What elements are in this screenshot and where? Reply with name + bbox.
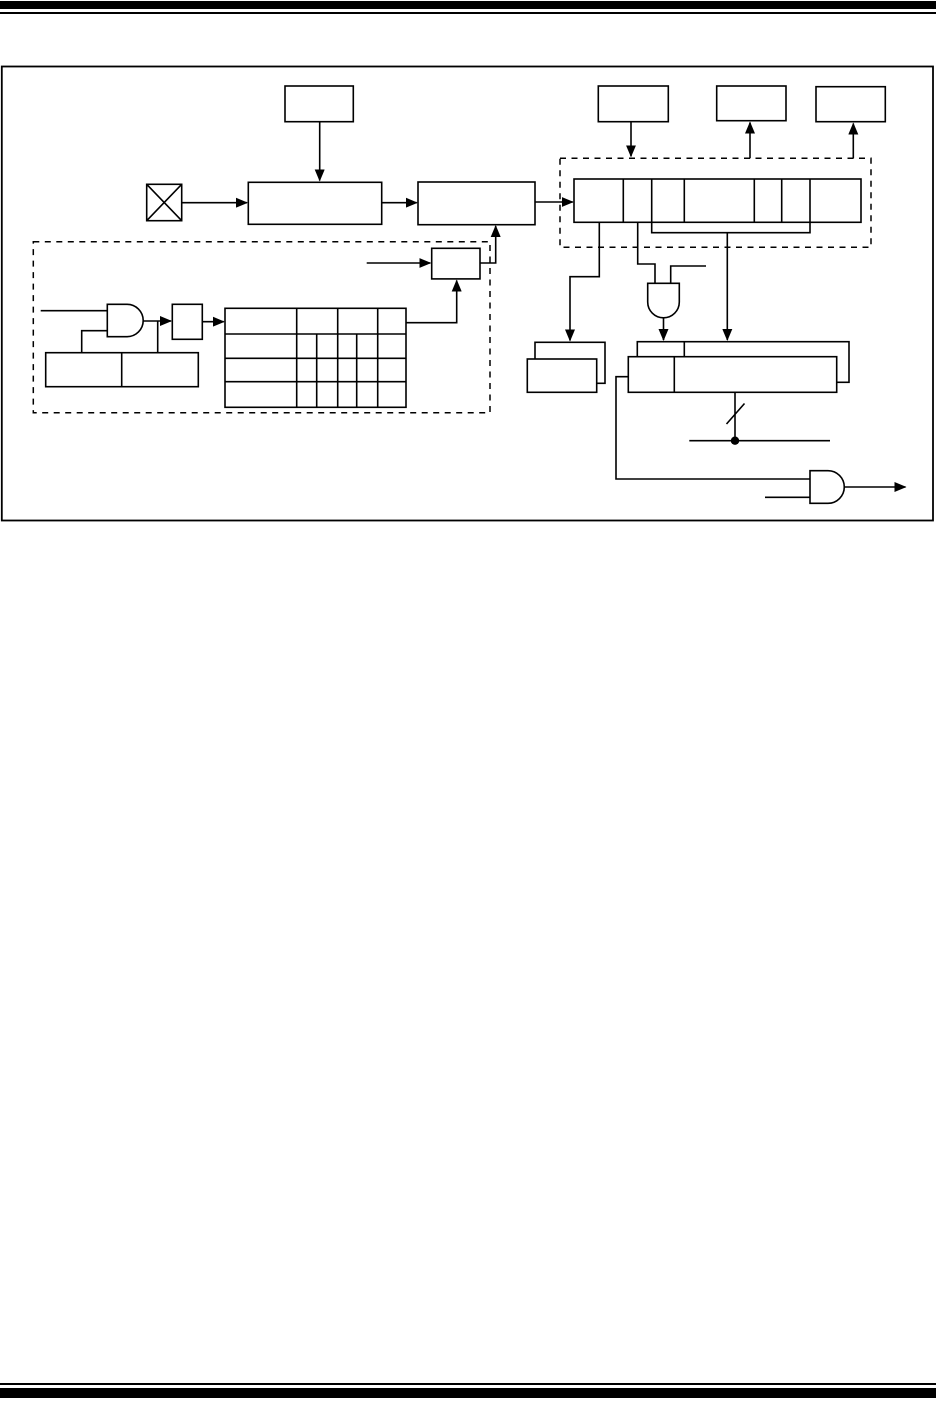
bit-register-body [574,179,861,222]
sync-box [432,248,480,279]
stage1-box [248,182,381,224]
gate-second-input-wire [671,266,706,283]
register-taps [570,222,810,340]
control-logic [41,226,496,407]
and-gate-middle [648,283,680,340]
two-field-box [46,353,199,387]
top-right-box-3 [816,87,885,122]
latch-box [172,304,202,339]
datasheet-page [0,0,936,1412]
wire-junction-dot [731,437,739,445]
table-to-sync-arrow [406,281,457,323]
register-pair-left [527,342,605,392]
and-gate-output-body [810,471,844,504]
block-diagram-figure [0,0,936,560]
bit-register [574,179,861,222]
right-pair-front-box [628,357,836,393]
divider-table [225,308,406,407]
top-right-box-1 [598,86,668,122]
sync-to-stage2-arrow [480,226,496,263]
and-gate-middle-body [648,283,680,318]
gate-left-bottom-input-wire [82,331,108,353]
crystal-symbol [147,184,182,220]
tap-bracket [652,222,810,232]
top-center-box [285,86,353,122]
stage2-box [418,182,535,225]
footer-thick-bar [0,1388,936,1398]
bus-output-section [616,377,906,504]
tap1-to-left-pair-arrow [570,222,599,340]
and-gate-output [810,471,906,504]
top-right-box-2 [717,86,786,121]
and-gate-left-body [107,304,143,336]
figure-border [2,67,933,521]
register-pair-right [628,342,849,393]
footer-thin-rule [0,1383,936,1385]
top-right-blocks [598,86,885,158]
left-pair-front-box [527,359,596,392]
main-chain [147,86,573,225]
